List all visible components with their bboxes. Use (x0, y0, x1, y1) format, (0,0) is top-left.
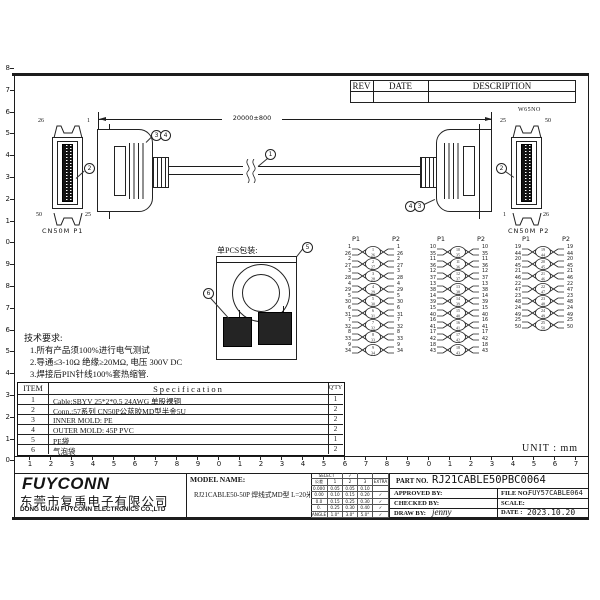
ruler-bottom-digit: 2 (47, 460, 55, 468)
pin-col-header-p2: P2 (562, 235, 578, 243)
ruler-left-tick (10, 351, 14, 352)
spec-cell-item: 1 (18, 395, 48, 404)
svg-text:1: 1 (372, 247, 374, 252)
scale-label: SCALE: (501, 500, 525, 507)
pin-pair-left-numbers: 2550 (507, 318, 521, 331)
frame-top-thick (12, 73, 589, 76)
tol-cell: 1.0° (328, 512, 343, 518)
spec-header-specification: Specification (48, 384, 329, 394)
titleblock-div-3 (389, 473, 390, 518)
draw-by-value: jenny (432, 507, 452, 517)
ruler-bottom-digit: 2 (467, 460, 475, 468)
pin-pair-right-numbers: 1843 (482, 343, 496, 356)
ruler-bottom-digit: 6 (341, 460, 349, 468)
tech-note-2: 2.导通≤3-10Ω 绝缘≥20MΩ, 电压 300V DC (30, 356, 182, 368)
tech-note-1: 1.所有产品须100%进行电气测试 (30, 344, 150, 356)
ruler-left-tick (10, 439, 14, 440)
ruler-left-tick (10, 242, 14, 243)
svg-text:25: 25 (541, 320, 545, 325)
pin-pair-left-numbers: 1843 (422, 343, 436, 356)
info-line-2 (389, 498, 588, 499)
specification-table: ITEM Specification Q'TY 1Cable:SBYV 25*2… (17, 382, 345, 456)
tol-cell: ANGLE (311, 512, 328, 518)
draw-by-label: DRAW BY: (394, 510, 426, 517)
pin-col-header-p1: P1 (352, 235, 368, 243)
file-no-label: FILE NO. (501, 490, 529, 497)
left-mold-window (114, 146, 126, 196)
file-no-value: FUY57CABLE064 (528, 489, 583, 497)
pin-pair-right-numbers: 1742 (482, 330, 496, 343)
ruler-left-digit: 6 (1, 326, 10, 334)
date-label: DATE : (501, 509, 522, 516)
pin-pair-right-numbers: 2550 (567, 318, 581, 331)
ruler-left-tick (10, 221, 14, 222)
ruler-left-tick (10, 90, 14, 91)
right-strain-relief (420, 157, 437, 188)
dim-arrow-left (99, 117, 106, 121)
date-value: 2023.10.20 (527, 508, 575, 517)
info-col-div (497, 488, 498, 518)
svg-text:11: 11 (456, 259, 460, 264)
ruler-bottom-digit: 7 (152, 460, 160, 468)
packaging-bag-seal (216, 262, 297, 263)
pin-pair-right-numbers: 530 (397, 294, 411, 307)
p1-pin-25: 25 (85, 212, 91, 218)
dimension-line (98, 119, 492, 120)
p1-bottom-bail (52, 208, 84, 227)
callout-connector-p1: 2 (84, 163, 95, 174)
p2-pin-1: 1 (503, 212, 506, 218)
ruler-bottom-digit: 0 (425, 460, 433, 468)
pin-pair-left-numbers: 429 (337, 282, 351, 295)
ruler-bottom-digit: 6 (551, 460, 559, 468)
ruler-left-tick (10, 199, 14, 200)
tol-cell: ✓ (373, 512, 389, 518)
ruler-left-tick (10, 330, 14, 331)
checked-by-label: CHECKED BY: (394, 500, 439, 507)
frame-ruler-line (14, 456, 588, 457)
ruler-left-tick (10, 177, 14, 178)
ruler-left-tick (10, 395, 14, 396)
callout-bubble-bag: 6 (203, 288, 214, 299)
ruler-bottom-digit: 2 (257, 460, 265, 468)
ruler-bottom-digit: 4 (299, 460, 307, 468)
twisted-pair-glyph: 934 (352, 343, 394, 357)
ruler-bottom-digit: 5 (530, 460, 538, 468)
cable-bottom-line-b (258, 174, 420, 175)
svg-text:7: 7 (372, 320, 374, 325)
ruler-bottom-digit: 9 (194, 460, 202, 468)
pin-col-header-p2: P2 (477, 235, 493, 243)
svg-text:3: 3 (372, 271, 374, 276)
ruler-bottom-digit: 8 (173, 460, 181, 468)
svg-text:13: 13 (456, 284, 460, 289)
pin-pair-left-numbers: 1439 (422, 294, 436, 307)
callout-cable: 1 (265, 149, 276, 160)
ruler-left-tick (10, 286, 14, 287)
ruler-left-digit: 2 (1, 413, 10, 421)
spec-cell-qty: 2 (328, 445, 343, 453)
ruler-left-digit: 0 (1, 456, 10, 464)
tolerance-table: SELECT✓公差123EXTRA0.0000.050.050.100.000.… (311, 473, 389, 518)
spec-header-item: ITEM (18, 384, 48, 393)
callout-pe-bag: 5 (302, 242, 313, 253)
coil-inner (242, 274, 280, 312)
ruler-bottom-digit: 8 (383, 460, 391, 468)
pin-pair-right-numbers: 2146 (567, 269, 581, 282)
pin-pair-left-numbers: 1742 (422, 330, 436, 343)
pin-col-header-p1: P1 (437, 235, 453, 243)
p2-tag: W65NO (518, 107, 541, 113)
ruler-bottom-digit: 3 (68, 460, 76, 468)
pin-pair-right-numbers: 833 (397, 330, 411, 343)
left-mold-grip-ribs (129, 143, 145, 199)
callout-inner-mold-right: 3 (414, 201, 425, 212)
pin-pair-left-numbers: 2348 (507, 294, 521, 307)
leader-mold-right (424, 199, 435, 205)
pin-pair-right-numbers: 429 (397, 282, 411, 295)
p2-connector-name: CN50M P2 (508, 227, 549, 235)
spec-cell-item: 5 (18, 435, 48, 444)
pin-pair-left-numbers: 1338 (422, 282, 436, 295)
part-no-value: RJ21CABLE50PBC0064 (432, 474, 546, 486)
spec-cell-item: 4 (18, 425, 48, 434)
svg-text:34: 34 (371, 350, 375, 355)
cable-break-symbol (243, 159, 259, 188)
ruler-bottom-digit: 3 (278, 460, 286, 468)
spec-cell-item: 6 (18, 445, 48, 454)
svg-text:43: 43 (456, 350, 460, 355)
pin-pair-left-numbers: 2146 (507, 269, 521, 282)
twisted-pair-glyph: 2550 (522, 318, 564, 332)
description-header: DESCRIPTION (428, 81, 576, 91)
svg-text:10: 10 (456, 247, 460, 252)
frame-bottom-thick (12, 517, 589, 520)
ruler-left-tick (10, 112, 14, 113)
ruler-bottom-digit: 4 (89, 460, 97, 468)
ruler-left-digit: 5 (1, 129, 10, 137)
pin-pair-left-numbers: 530 (337, 294, 351, 307)
unit-label: UNIT : mm (522, 443, 578, 454)
p2-pin-50: 50 (545, 118, 551, 124)
pin-pair-right-numbers: 1439 (482, 294, 496, 307)
ruler-left-digit: 7 (1, 86, 10, 94)
svg-text:17: 17 (456, 332, 460, 337)
ruler-left-tick (10, 460, 14, 461)
callout-connector-p2: 2 (496, 163, 507, 174)
company-name-en: DONG GUAN FUYCONN ELECTRONICS CO.,LTD (20, 506, 165, 513)
pin-pair-right-numbers: 934 (397, 343, 411, 356)
spec-cell-qty: 2 (328, 425, 343, 433)
ruler-left-tick (10, 308, 14, 309)
frame-right (588, 73, 589, 518)
pin-pair-right-numbers: 1338 (482, 282, 496, 295)
cable-top-line-a (169, 166, 245, 167)
pin-pair-left-numbers: 328 (337, 269, 351, 282)
p2-bottom-bail (511, 208, 543, 227)
ruler-left-digit: 4 (1, 369, 10, 377)
pin-pair-right-numbers: 2348 (567, 294, 581, 307)
ruler-left-tick (10, 417, 14, 418)
ruler-left-digit: 8 (1, 64, 10, 72)
ruler-left-digit: 9 (1, 260, 10, 268)
approved-by-label: APPROVED BY: (394, 490, 442, 497)
ruler-bottom-digit: 1 (446, 460, 454, 468)
ruler-bottom-digit: 7 (362, 460, 370, 468)
cable-bottom-line-a (169, 174, 245, 175)
right-mold-grip-ribs (444, 143, 460, 199)
spec-cell-qty: 1 (328, 435, 343, 443)
rev-line-h (350, 91, 576, 92)
ruler-left-digit: 1 (1, 217, 10, 225)
tol-cell: 5.0° (358, 512, 373, 518)
frame-left (14, 73, 15, 518)
ruler-bottom-digit: 1 (236, 460, 244, 468)
p1-pin-50: 50 (36, 212, 42, 218)
svg-text:14: 14 (456, 296, 460, 301)
svg-text:4: 4 (372, 284, 374, 289)
ruler-left-digit: 2 (1, 195, 10, 203)
pin-pair-right-numbers: 1237 (482, 269, 496, 282)
svg-text:9: 9 (372, 345, 374, 350)
svg-text:20: 20 (541, 259, 545, 264)
ruler-left-digit: 5 (1, 347, 10, 355)
spec-cell-qty: 1 (328, 395, 343, 403)
ruler-bottom-digit: 9 (404, 460, 412, 468)
ruler-left-tick (10, 373, 14, 374)
ruler-left-digit: 8 (1, 282, 10, 290)
right-mold-window (463, 146, 475, 196)
pin-pair-right-numbers: 2247 (567, 282, 581, 295)
engineering-drawing-sheet: REV DATE DESCRIPTION 20000±800 26 1 50 2… (0, 0, 600, 600)
svg-text:19: 19 (541, 247, 545, 252)
svg-text:21: 21 (541, 271, 545, 276)
pin-pair-right-numbers: 328 (397, 269, 411, 282)
packaging-connector-block-right (258, 312, 292, 345)
spec-header-qty: Q'TY (328, 385, 343, 391)
ruler-left-tick (10, 155, 14, 156)
p1-pin-1: 1 (87, 118, 90, 124)
tol-cell: 3.0° (343, 512, 358, 518)
svg-text:6: 6 (372, 308, 374, 313)
ruler-bottom-digit: 3 (488, 460, 496, 468)
ruler-left-digit: 3 (1, 173, 10, 181)
ruler-bottom-digit: 1 (26, 460, 34, 468)
packaging-connector-block-left (223, 317, 252, 347)
date-header: DATE (373, 81, 428, 91)
callout-outer-mold-left: 4 (160, 130, 171, 141)
p2-pin-26: 26 (543, 212, 549, 218)
model-name-label: MODEL NAME: (190, 475, 245, 484)
ruler-bottom-digit: 4 (509, 460, 517, 468)
p1-pin-strip (62, 144, 73, 202)
ruler-left-tick (10, 264, 14, 265)
p1-pin-26: 26 (38, 118, 44, 124)
left-strain-relief (152, 157, 169, 188)
ruler-left-tick (10, 68, 14, 69)
svg-text:22: 22 (541, 284, 545, 289)
titleblock-div-1 (186, 473, 187, 518)
model-name-value: RJ21CABLE50-50P 焊线式MD型 L=20米 (194, 489, 310, 499)
p2-pin-strip (521, 144, 532, 202)
spec-cell-qty: 2 (328, 415, 343, 423)
pin-pair-left-numbers: 1237 (422, 269, 436, 282)
pin-pair-left-numbers: 2247 (507, 282, 521, 295)
ruler-left-digit: 4 (1, 151, 10, 159)
right-mold-flange (479, 124, 480, 219)
dim-arrow-right (485, 117, 492, 121)
svg-text:16: 16 (456, 320, 460, 325)
ruler-bottom-digit: 5 (320, 460, 328, 468)
pin-col-header-p1: P1 (522, 235, 538, 243)
dimension-label: 20000±800 (222, 114, 282, 122)
rev-header: REV (350, 81, 373, 91)
ruler-bottom-digit: 7 (572, 460, 580, 468)
part-no-label: PART NO. (396, 477, 428, 485)
svg-text:18: 18 (456, 345, 460, 350)
svg-text:2: 2 (372, 259, 374, 264)
svg-text:24: 24 (541, 308, 545, 313)
cable-top-line-b (258, 166, 420, 167)
spec-cell-qty: 2 (328, 405, 343, 413)
ruler-bottom-digit: 5 (110, 460, 118, 468)
svg-text:8: 8 (372, 332, 374, 337)
ruler-left-digit: 7 (1, 304, 10, 312)
ruler-left-digit: 3 (1, 391, 10, 399)
packaging-title: 单PCS包装: (217, 245, 257, 256)
p2-pin-25: 25 (500, 118, 506, 124)
tech-note-3: 3.焊接后PIN针线100%套热缩管. (30, 368, 149, 380)
ruler-left-tick (10, 133, 14, 134)
ruler-left-digit: 0 (1, 238, 10, 246)
svg-text:12: 12 (456, 271, 460, 276)
pin-pair-left-numbers: 833 (337, 330, 351, 343)
svg-text:50: 50 (541, 326, 545, 331)
ruler-left-digit: 1 (1, 435, 10, 443)
p1-connector-name: CN50M P1 (42, 227, 83, 235)
twisted-pair-glyph: 1843 (437, 343, 479, 357)
tech-notes-title: 技术要求: (24, 331, 63, 344)
spec-cell-text: 气泡袋 (53, 446, 76, 457)
spec-cell-item: 2 (18, 405, 48, 414)
ruler-bottom-digit: 6 (131, 460, 139, 468)
svg-text:23: 23 (541, 296, 545, 301)
svg-text:15: 15 (456, 308, 460, 313)
pin-col-header-p2: P2 (392, 235, 408, 243)
ruler-left-digit: 6 (1, 108, 10, 116)
ruler-bottom-digit: 0 (215, 460, 223, 468)
pin-pair-left-numbers: 934 (337, 343, 351, 356)
svg-text:5: 5 (372, 296, 374, 301)
spec-cell-item: 3 (18, 415, 48, 424)
